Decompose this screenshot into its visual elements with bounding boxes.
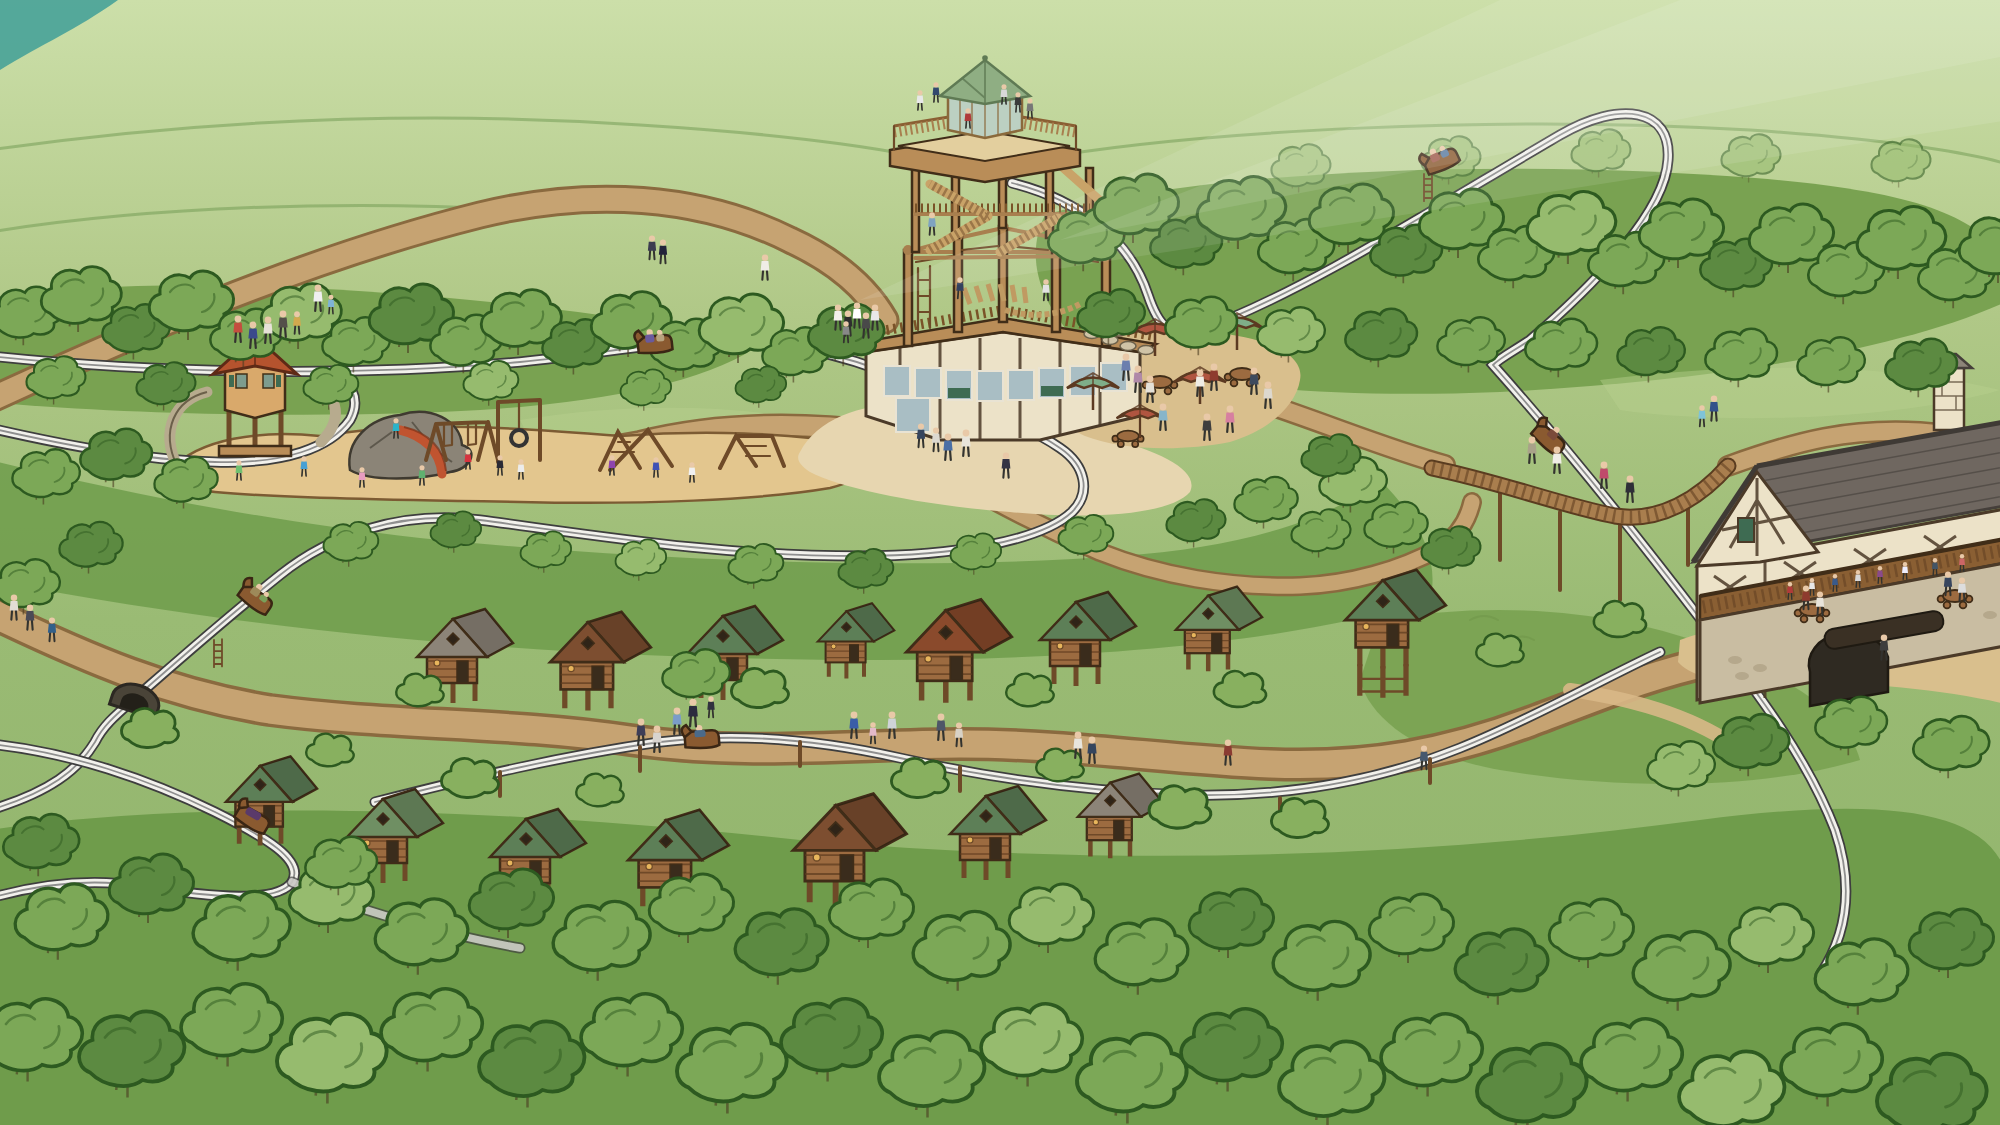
park-map-canvas: Illustrated forest adventure park map (0, 0, 2000, 1125)
gable-window (1738, 518, 1754, 542)
entrance-doors (896, 398, 930, 432)
park-map-illustration: Illustrated forest adventure park map (0, 0, 2000, 1125)
